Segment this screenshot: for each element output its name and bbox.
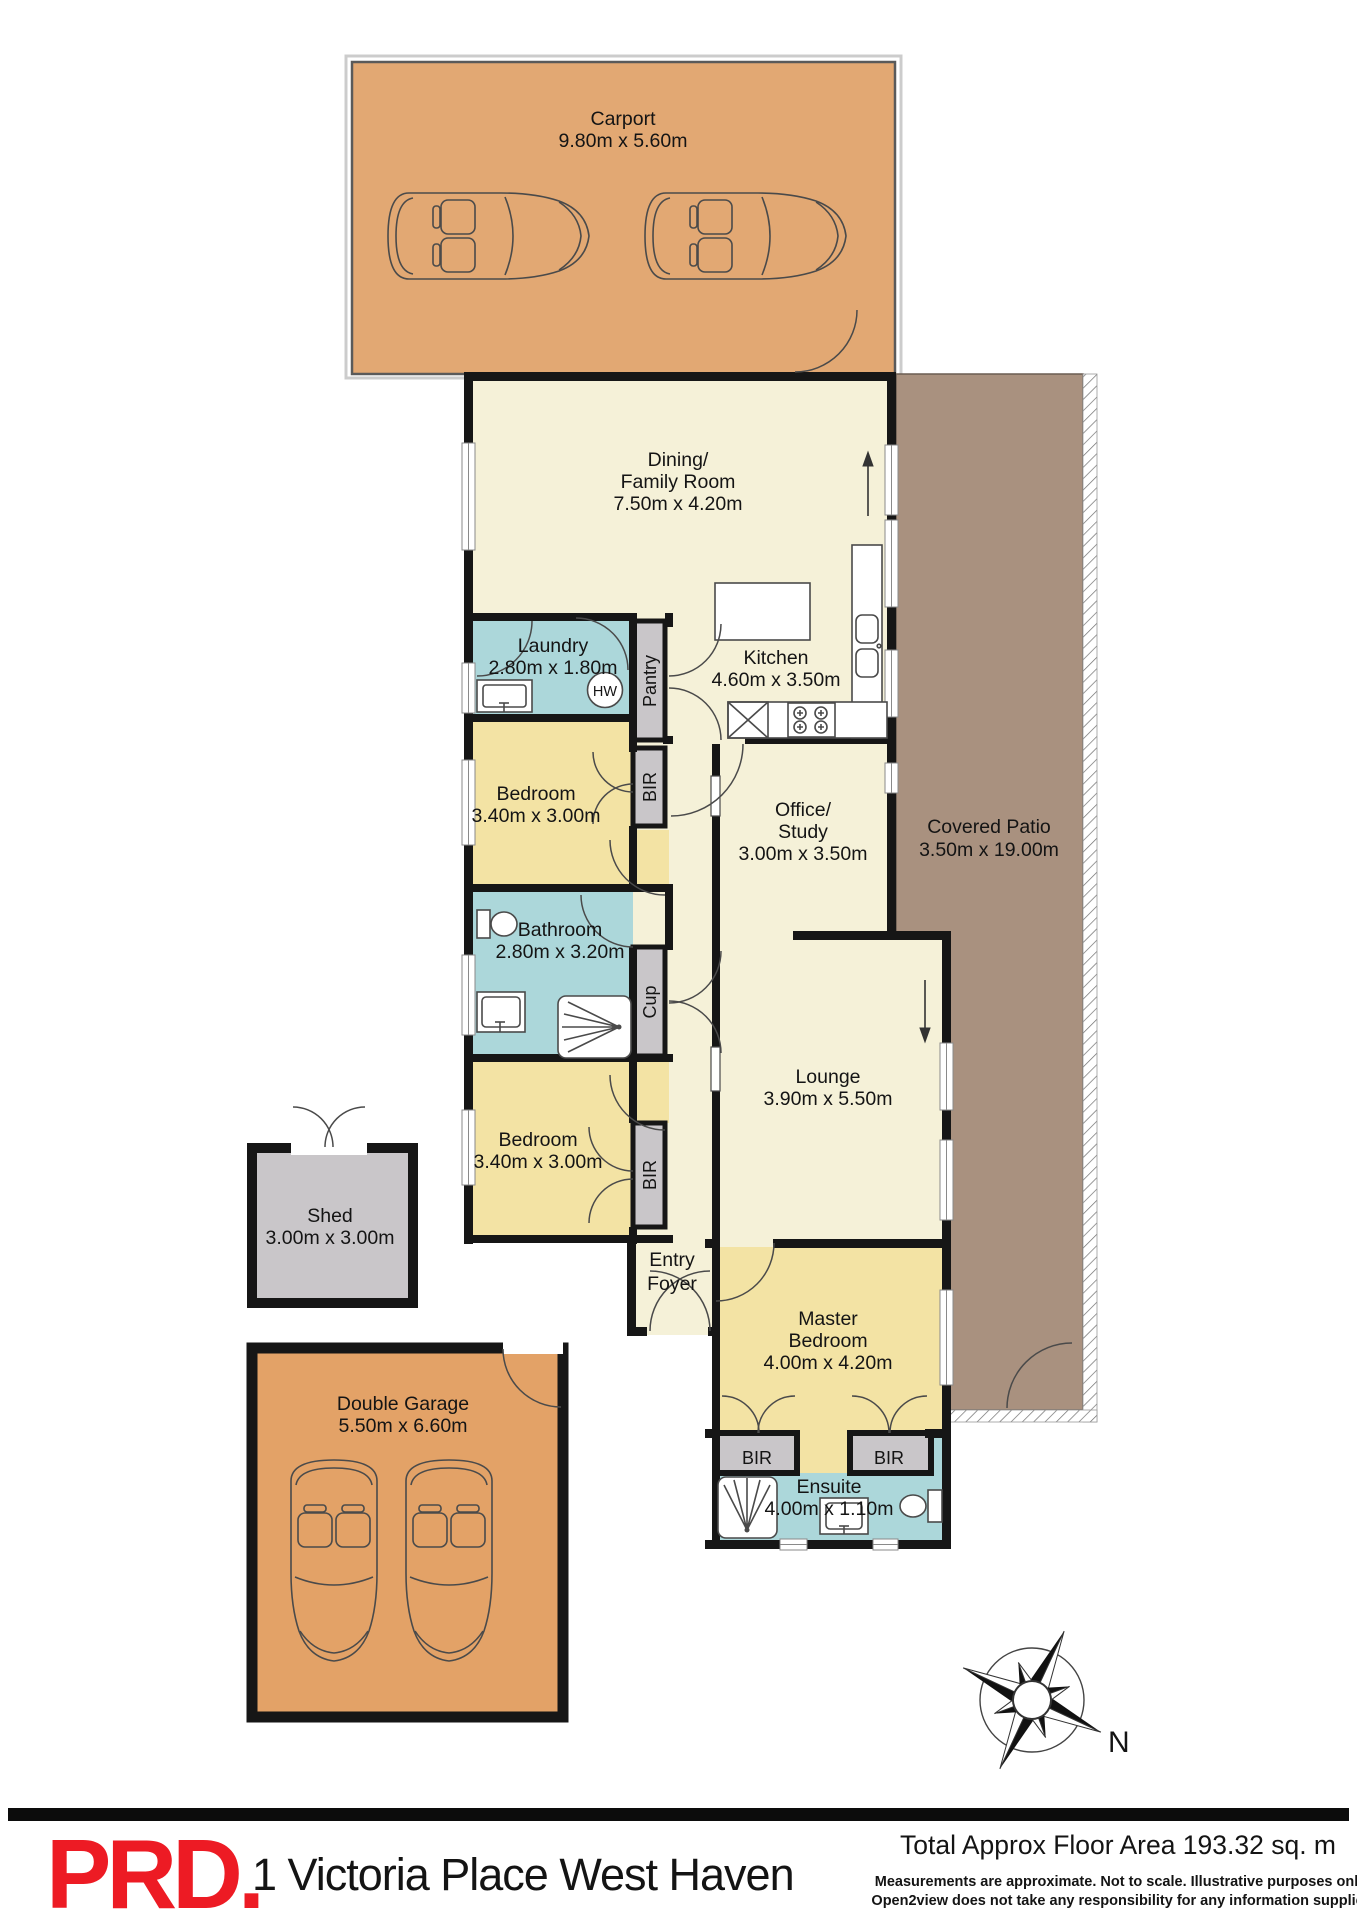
window	[885, 520, 898, 607]
dining-dims: 7.50m x 4.20m	[614, 493, 743, 515]
disclaimer-line2: Open2view does not take any responsibili…	[871, 1893, 1357, 1909]
office-dims: 3.00m x 3.50m	[739, 843, 868, 865]
window	[462, 663, 475, 713]
patio-label: Covered Patio	[927, 816, 1051, 838]
bathroom-label: Bathroom	[518, 919, 603, 941]
ensuite-dims: 4.00m x 1.10m	[765, 1498, 894, 1520]
ensuite-label: Ensuite	[796, 1476, 861, 1498]
floorplan-drawing: Carport 9.80m x 5.60m Covered Patio 3.50…	[0, 0, 1357, 1920]
pantry-label: Pantry	[640, 655, 660, 707]
carport-dims: 9.80m x 5.60m	[559, 130, 688, 152]
office-door-leaf	[711, 776, 720, 816]
hot-water-label: HW	[593, 684, 617, 700]
master-dims: 4.00m x 4.20m	[764, 1352, 893, 1374]
kitchen-dims: 4.60m x 3.50m	[712, 669, 841, 691]
entry-foyer-label2: Foyer	[647, 1273, 697, 1295]
patio-sliding-door	[885, 445, 898, 515]
bir1-label: BIR	[640, 772, 660, 802]
total-floor-area: Total Approx Floor Area 193.32 sq. m	[900, 1830, 1336, 1860]
bedroom1-dims: 3.40m x 3.00m	[472, 805, 601, 827]
garage-dims: 5.50m x 6.60m	[339, 1415, 468, 1437]
window	[873, 1539, 898, 1550]
dining-label1: Dining/	[648, 449, 709, 471]
carport: Carport 9.80m x 5.60m	[346, 56, 901, 378]
master-bir-left-label: BIR	[742, 1448, 772, 1468]
office-label2: Study	[778, 821, 828, 843]
floorplan-page: Carport 9.80m x 5.60m Covered Patio 3.50…	[0, 0, 1357, 1920]
window	[885, 763, 898, 793]
compass-rose-icon: N	[931, 1599, 1133, 1801]
window	[940, 1043, 953, 1110]
shed-label: Shed	[307, 1205, 353, 1227]
garage-label: Double Garage	[337, 1393, 469, 1415]
bedroom2-label: Bedroom	[498, 1129, 577, 1151]
laundry-tub-icon	[477, 680, 532, 712]
master-bir-right-label: BIR	[874, 1448, 904, 1468]
window	[940, 1140, 953, 1220]
window	[780, 1539, 807, 1550]
shed: Shed 3.00m x 3.00m	[252, 1107, 413, 1303]
bedroom1-label: Bedroom	[496, 783, 575, 805]
bedroom2-dims: 3.40m x 3.00m	[474, 1151, 603, 1173]
lounge-door-leaf	[711, 1047, 720, 1091]
bathroom-dims: 2.80m x 3.20m	[496, 941, 625, 963]
window	[462, 443, 475, 550]
bedroom1-door-zone	[633, 830, 669, 888]
disclaimer-line1: Measurements are approximate. Not to sca…	[875, 1874, 1357, 1890]
window	[462, 1110, 475, 1185]
deck-edge-hatch-bottom	[947, 1410, 1097, 1422]
entry-foyer-label1: Entry	[649, 1249, 695, 1271]
master-label1: Master	[798, 1308, 858, 1330]
laundry-label: Laundry	[518, 635, 589, 657]
master-ensuite-passage	[798, 1433, 850, 1473]
laundry-dims: 2.80m x 1.80m	[489, 657, 618, 679]
window	[462, 760, 475, 845]
cupboard-label: Cup	[640, 985, 660, 1018]
bir2-label: BIR	[640, 1160, 660, 1190]
property-address: 1 Victoria Place West Haven	[252, 1849, 794, 1900]
master-label2: Bedroom	[788, 1330, 867, 1352]
lounge-label: Lounge	[795, 1066, 860, 1088]
carport-label: Carport	[590, 108, 656, 130]
deck-edge-hatch	[1083, 374, 1097, 1422]
shower-icon	[558, 996, 631, 1058]
office-label1: Office/	[775, 799, 832, 821]
dining-label2: Family Room	[621, 471, 736, 493]
kitchen-label: Kitchen	[743, 647, 808, 669]
footer: PRD. 1 Victoria Place West Haven Total A…	[8, 1808, 1357, 1920]
window	[462, 955, 475, 1035]
bedroom2-door-zone	[633, 1058, 669, 1123]
shed-dims: 3.00m x 3.00m	[266, 1227, 395, 1249]
double-garage: Double Garage 5.50m x 6.60m	[252, 1340, 563, 1717]
brand-logo: PRD.	[46, 1819, 260, 1920]
kitchen-island-icon	[715, 583, 810, 640]
north-label: N	[1108, 1726, 1130, 1759]
bathroom-sink-icon	[477, 992, 525, 1032]
patio-dims: 3.50m x 19.00m	[919, 839, 1059, 861]
lounge-dims: 3.90m x 5.50m	[764, 1088, 893, 1110]
toilet-icon	[477, 910, 517, 938]
window	[940, 1290, 953, 1385]
kitchen-bench	[728, 702, 887, 738]
